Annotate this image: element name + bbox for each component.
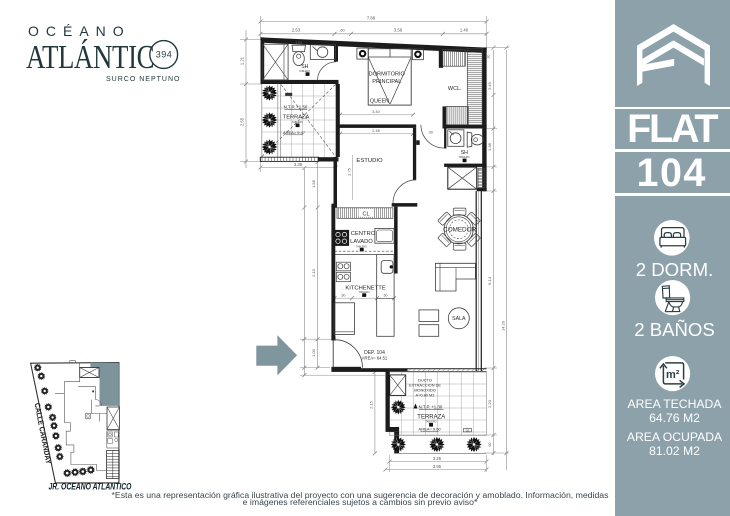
svg-text:N.T.P. +1.50: N.T.P. +1.50	[284, 104, 308, 109]
svg-text:GE: GE	[466, 428, 470, 432]
svg-text:2.55: 2.55	[240, 117, 245, 126]
svg-text:2.75: 2.75	[348, 168, 352, 175]
svg-text:2.43: 2.43	[487, 81, 492, 90]
svg-text:6.14: 6.14	[487, 276, 492, 285]
svg-text:DORMITORIO: DORMITORIO	[369, 72, 406, 78]
svg-text:PRINCIPAL: PRINCIPAL	[372, 79, 401, 85]
svg-text:.60: .60	[339, 29, 344, 33]
svg-text:2.15: 2.15	[369, 400, 374, 409]
svg-text:2.10: 2.10	[311, 268, 316, 277]
svg-text:.60: .60	[383, 294, 388, 298]
svg-text:TERRAZA: TERRAZA	[283, 114, 310, 120]
svg-text:7.88: 7.88	[367, 16, 376, 21]
svg-text:3.56: 3.56	[394, 28, 403, 33]
svg-text:AREA= 64.51: AREA= 64.51	[362, 356, 388, 361]
svg-text:1.58: 1.58	[311, 179, 316, 188]
svg-text:AREA= 9.47: AREA= 9.47	[283, 130, 306, 135]
svg-text:1.38: 1.38	[487, 142, 492, 151]
svg-text:TABLERO: TABLERO	[459, 156, 470, 159]
svg-text:CL: CL	[362, 211, 369, 217]
svg-text:SALA: SALA	[452, 316, 466, 322]
svg-text:QUEEN: QUEEN	[370, 98, 389, 104]
svg-text:m²: m²	[666, 369, 680, 381]
svg-text:CENTRO: CENTRO	[351, 231, 376, 237]
svg-text:.60: .60	[341, 294, 346, 298]
svg-text:3.95: 3.95	[433, 464, 442, 469]
svg-text:N.T.P. +1.30: N.T.P. +1.30	[419, 404, 443, 409]
svg-text:ESTUDIO: ESTUDIO	[356, 158, 383, 164]
svg-text:3.40: 3.40	[372, 110, 379, 114]
svg-text:1.53: 1.53	[295, 41, 302, 45]
svg-text:2.48: 2.48	[372, 129, 379, 133]
svg-text:COMEDOR: COMEDOR	[443, 227, 476, 234]
svg-text:.90: .90	[428, 131, 433, 135]
svg-text:WCL.: WCL.	[448, 86, 462, 92]
svg-text:LAVADO: LAVADO	[350, 239, 373, 245]
svg-text:3.38: 3.38	[294, 162, 303, 167]
svg-text:TABLERO: TABLERO	[426, 420, 437, 423]
svg-text:1.00: 1.00	[311, 348, 316, 357]
svg-text:3.25: 3.25	[433, 456, 442, 461]
svg-text:CALLE CARANDAY: CALLE CARANDAY	[33, 402, 54, 465]
svg-text:.30: .30	[487, 55, 491, 60]
svg-text:TABLERO: TABLERO	[292, 121, 303, 124]
svg-text:2.53: 2.53	[292, 28, 301, 33]
svg-text:.60: .60	[488, 443, 492, 448]
svg-text:1.40: 1.40	[460, 28, 469, 33]
svg-text:A=0.80 M2: A=0.80 M2	[416, 393, 435, 398]
svg-text:14.20: 14.20	[501, 320, 506, 331]
svg-text:1.21: 1.21	[240, 56, 245, 65]
svg-text:2.20: 2.20	[487, 399, 492, 408]
svg-text:AREA= 9.60: AREA= 9.60	[419, 427, 442, 432]
